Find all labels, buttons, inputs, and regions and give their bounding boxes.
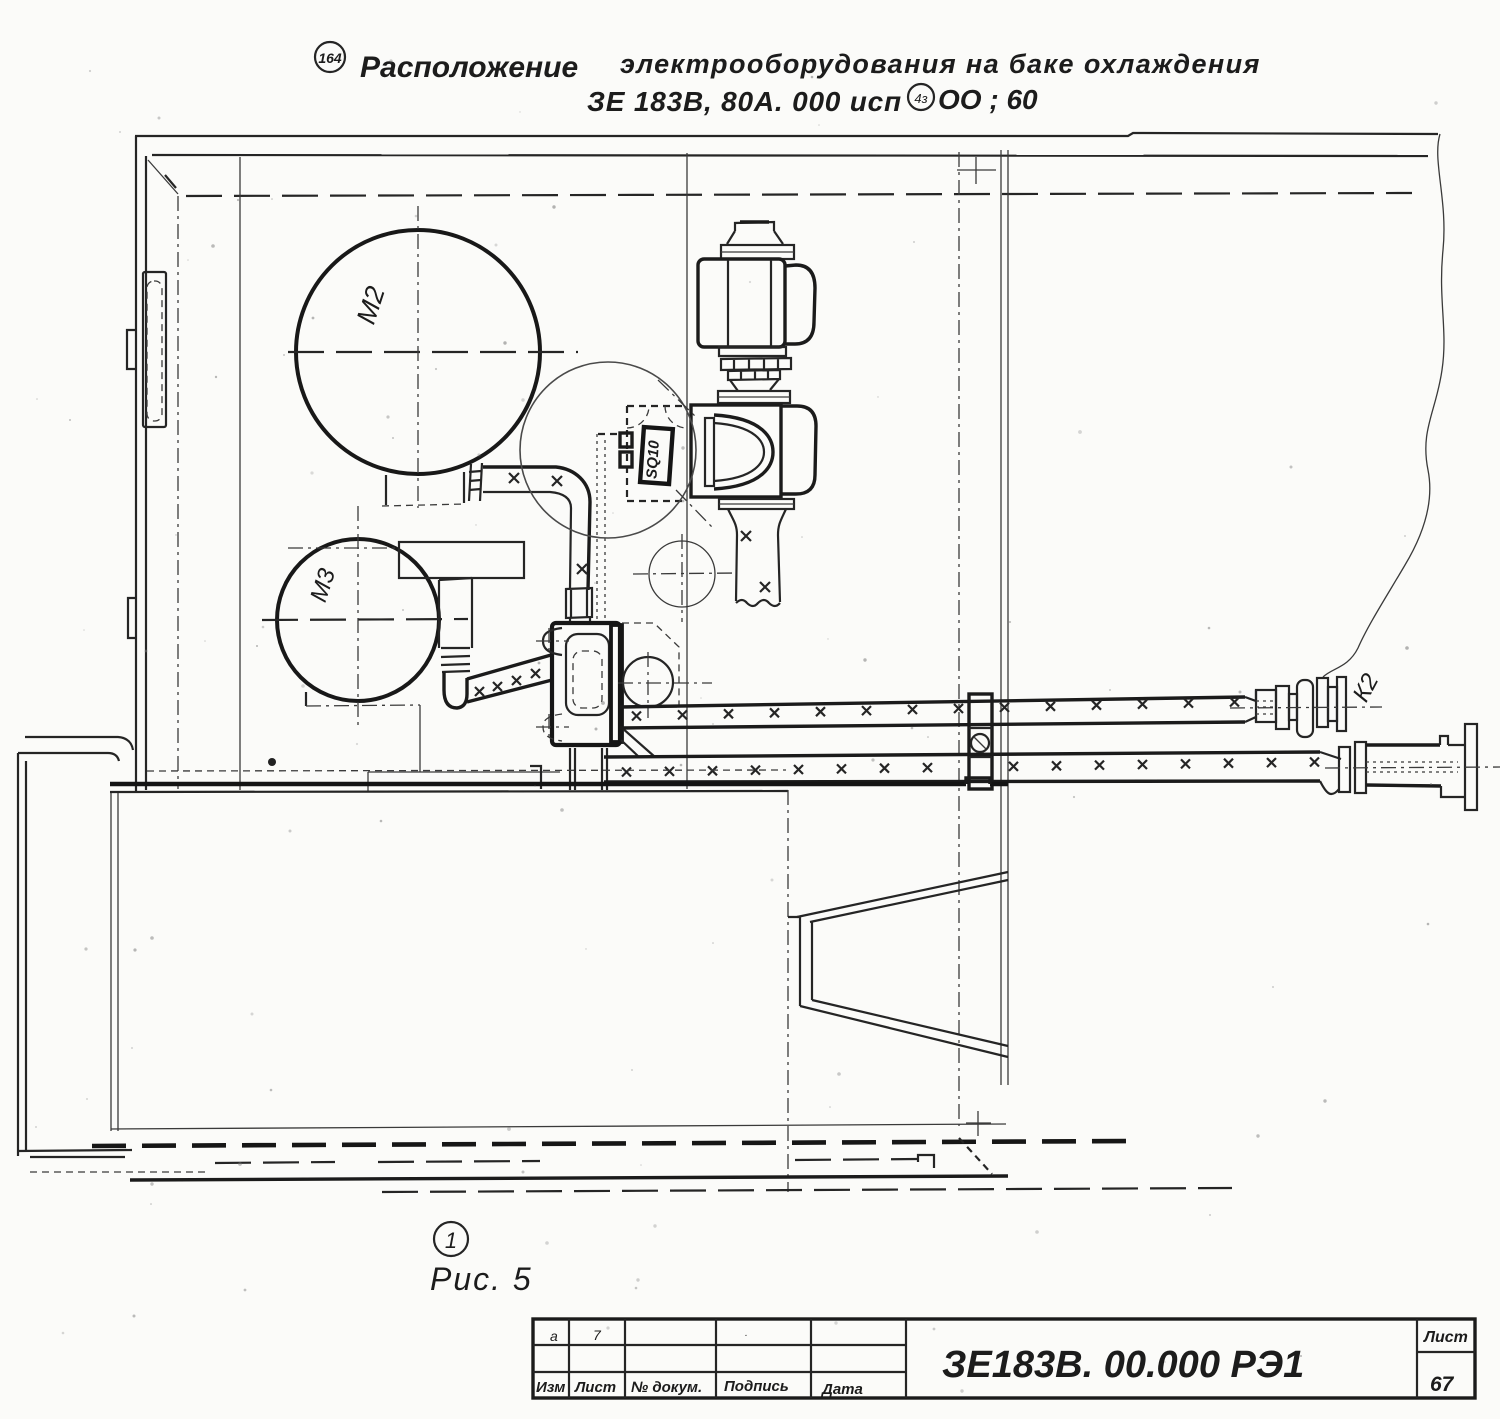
svg-text:К2: К2 [1348,669,1385,706]
svg-text:Рис. 5: Рис. 5 [430,1261,533,1297]
svg-text:электрооборудования на баке: электрооборудования на баке охлаждения [620,49,1261,79]
svg-text:Изм: Изм [536,1379,565,1396]
svg-text:ЗЕ 183В, 80А. 000 исп: ЗЕ 183В, 80А. 000 исп [587,86,902,117]
svg-text:а: а [550,1328,558,1344]
svg-text:4з: 4з [914,91,927,106]
svg-text:Расположение: Расположение [360,51,578,84]
svg-text:Подпись: Подпись [724,1378,789,1395]
svg-text:Лист: Лист [574,1379,616,1396]
svg-text:67: 67 [1430,1373,1455,1396]
svg-text:SQ10: SQ10 [643,439,663,479]
svg-text:ЗЕ183В. 00.000 РЭ1: ЗЕ183В. 00.000 РЭ1 [942,1344,1304,1386]
svg-text:№ докум.: № докум. [631,1379,702,1396]
svg-text:Дата: Дата [820,1381,863,1398]
svg-text:1: 1 [445,1228,457,1253]
svg-text:7: 7 [593,1327,602,1343]
svg-text:ОО ; 60: ОО ; 60 [938,84,1038,115]
svg-text:.: . [745,1328,748,1339]
svg-text:М2: М2 [351,283,391,328]
svg-text:164: 164 [318,50,342,66]
svg-text:М3: М3 [305,565,341,606]
svg-text:Лист: Лист [1423,1329,1468,1346]
